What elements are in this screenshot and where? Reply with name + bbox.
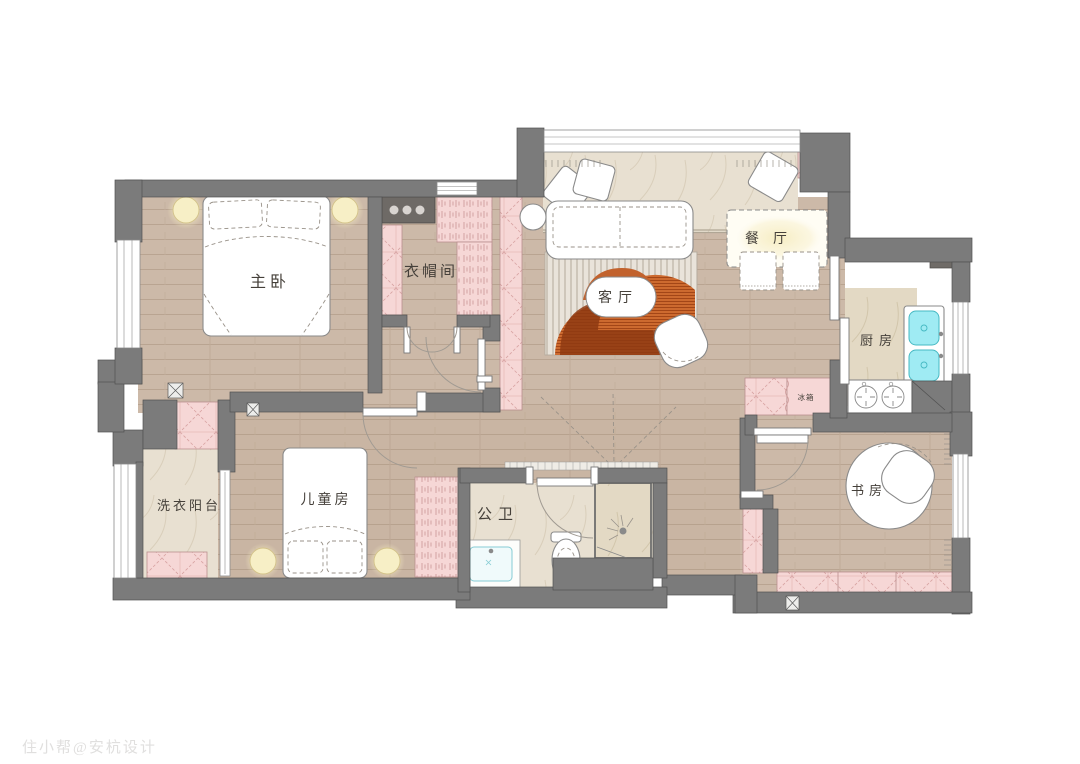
bedside-lamp-icon (332, 197, 358, 223)
bedside-lamp-icon (374, 548, 400, 574)
pillow (208, 200, 262, 230)
label-bathroom: 公卫 (477, 507, 519, 523)
wall-cap (477, 376, 492, 382)
dining-chair (783, 252, 819, 290)
shower (595, 483, 651, 558)
floorplan-svg: 主卧 衣帽间 客厅 餐厅 厨房 冰箱 书房 公卫 儿童房 洗衣阳台 住小帮@安杭… (0, 0, 1080, 764)
label-dining-room: 餐厅 (745, 231, 801, 247)
label-master-bedroom: 主卧 (250, 273, 290, 291)
bedside-lamp-icon (173, 197, 199, 223)
shower-head-icon (620, 528, 627, 535)
dresser-knob-icon (403, 206, 412, 215)
wall-cap (417, 392, 426, 411)
closet-cabinet-right (457, 242, 492, 315)
window-living-top (544, 130, 800, 152)
window-laundry-left (114, 464, 136, 578)
entry-door-leaf (757, 435, 808, 443)
faucet-icon (489, 549, 494, 554)
pillow (327, 541, 362, 573)
label-study: 书房 (851, 483, 887, 498)
shoe-cabinet (743, 509, 765, 573)
dining-chair (740, 252, 776, 290)
glass-door-laundry (220, 470, 230, 576)
bath-door-leaf (537, 478, 593, 486)
window-kitchen-right (953, 302, 968, 374)
closet-cabinet-left (382, 225, 402, 315)
label-kids-room: 儿童房 (301, 491, 352, 508)
faucet-icon (939, 354, 943, 358)
kitchen-sink-basin (909, 311, 939, 345)
label-kitchen: 厨房 (860, 333, 898, 348)
label-living-room: 客厅 (598, 289, 638, 306)
window-study-right (953, 454, 968, 538)
label-cloakroom: 衣帽间 (404, 263, 458, 280)
kids-wardrobe (415, 477, 458, 577)
kids-door-leaf (363, 408, 417, 416)
bedside-lamp-icon (250, 548, 276, 574)
pillow (288, 541, 323, 573)
pillow (266, 200, 320, 230)
window-closet-top (437, 182, 477, 195)
entry-cabinet (745, 378, 787, 415)
dresser-knob-icon (416, 206, 425, 215)
label-refrigerator: 冰箱 (798, 392, 815, 402)
tv-cabinet (500, 197, 522, 410)
window-master-left (117, 240, 140, 348)
wall-cap (741, 491, 763, 498)
laundry-cabinet (147, 552, 207, 578)
faucet-icon (939, 332, 943, 336)
closet-cabinet-top (437, 197, 492, 242)
sofa (546, 201, 693, 259)
dresser-knob-icon (390, 206, 399, 215)
side-table (520, 204, 546, 230)
washer-cabinet (175, 402, 218, 449)
watermark: 住小帮@安杭设计 (22, 739, 157, 756)
entry-threshold (754, 428, 811, 435)
door-jamb (591, 467, 598, 484)
floorplan-canvas: 主卧 衣帽间 客厅 餐厅 厨房 冰箱 书房 公卫 儿童房 洗衣阳台 住小帮@安杭… (0, 0, 1080, 764)
kitchen-sink-basin (909, 350, 939, 381)
door-jamb (526, 467, 533, 484)
kitchen-slider-panel (830, 256, 839, 320)
label-laundry-balcony: 洗衣阳台 (157, 498, 221, 513)
kitchen-slider-panel (840, 318, 849, 384)
